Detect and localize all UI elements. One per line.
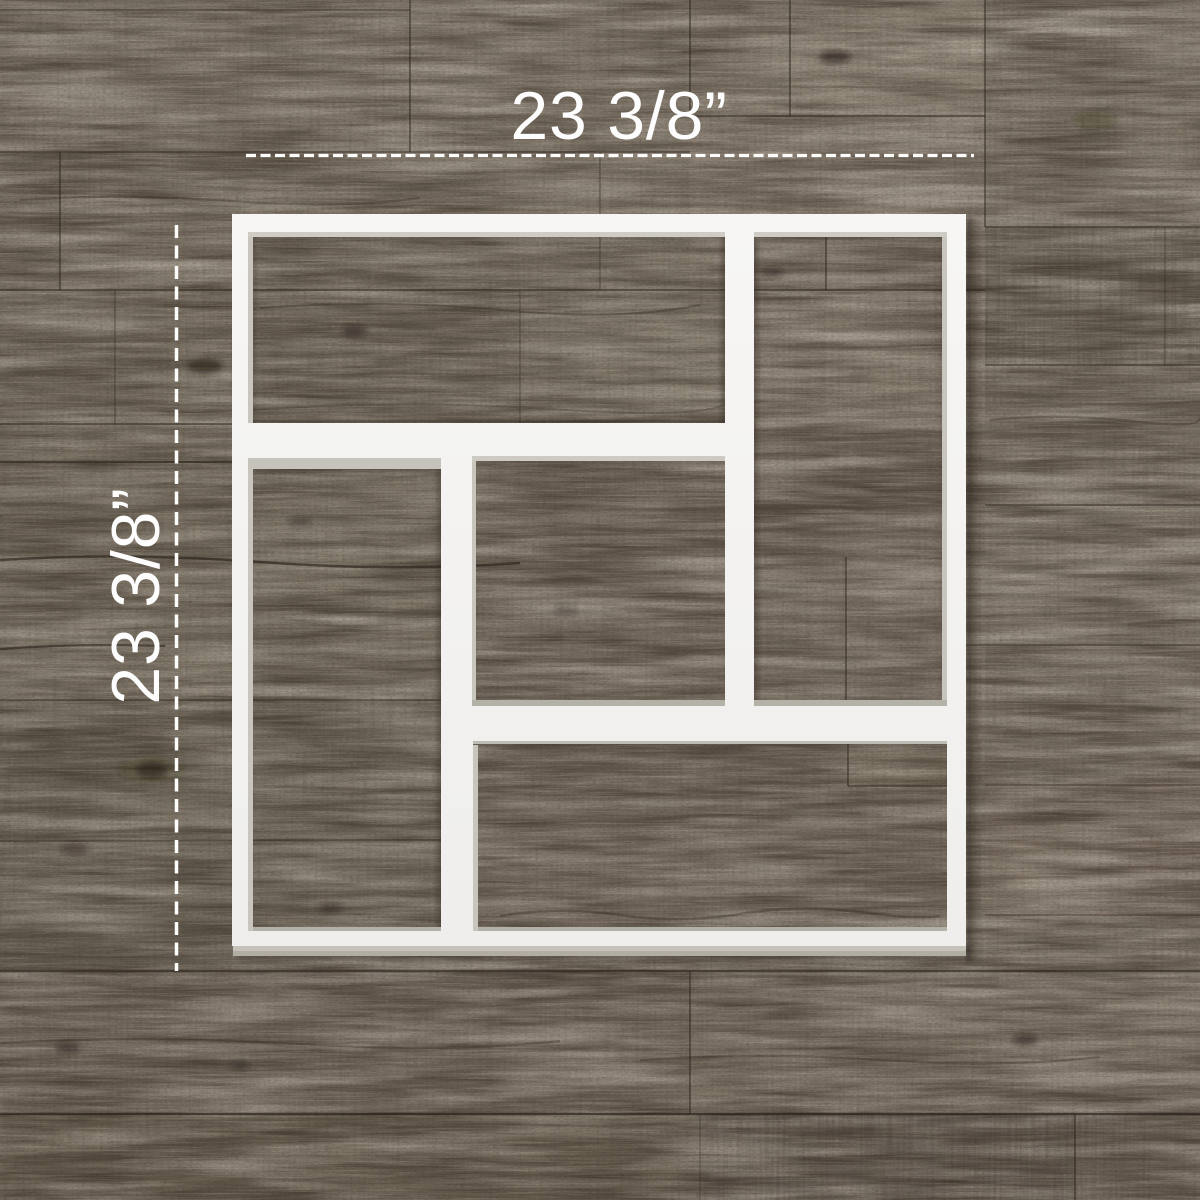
svg-text:23 3/8”: 23 3/8”	[510, 78, 727, 154]
svg-text:23 3/8”: 23 3/8”	[98, 487, 174, 704]
